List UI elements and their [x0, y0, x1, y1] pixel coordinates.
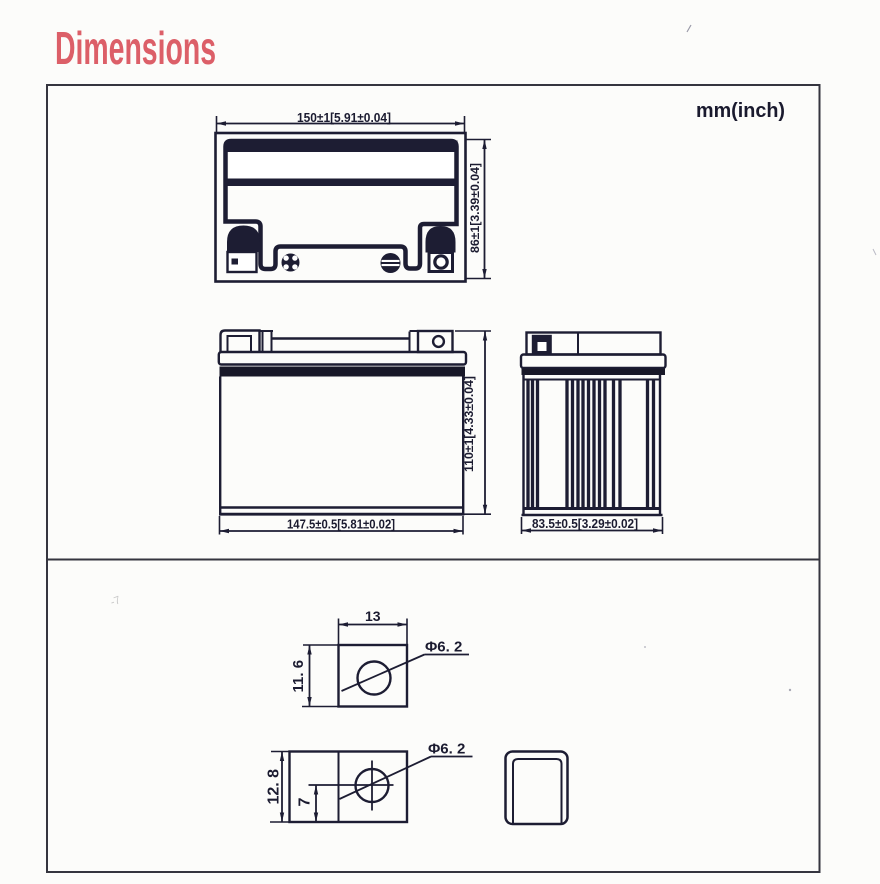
- svg-text:147.5±0.5[5.81±0.02]: 147.5±0.5[5.81±0.02]: [287, 517, 395, 532]
- svg-text:86±1[3.39±0.04]: 86±1[3.39±0.04]: [468, 163, 482, 253]
- svg-text:Φ6. 2: Φ6. 2: [425, 639, 462, 656]
- svg-text:mm(inch): mm(inch): [696, 100, 785, 122]
- svg-text:83.5±0.5[3.29±0.02]: 83.5±0.5[3.29±0.02]: [532, 516, 638, 531]
- svg-text:110±1[4.33±0.04]: 110±1[4.33±0.04]: [462, 376, 476, 472]
- svg-text:Φ6. 2: Φ6. 2: [428, 741, 465, 758]
- svg-text:Dimensions: Dimensions: [55, 22, 216, 74]
- svg-text:11. 6: 11. 6: [290, 660, 307, 693]
- svg-text:150±1[5.91±0.04]: 150±1[5.91±0.04]: [297, 110, 391, 125]
- svg-text:12. 8: 12. 8: [266, 769, 283, 805]
- svg-text:13: 13: [365, 608, 381, 624]
- svg-text:7: 7: [297, 798, 314, 807]
